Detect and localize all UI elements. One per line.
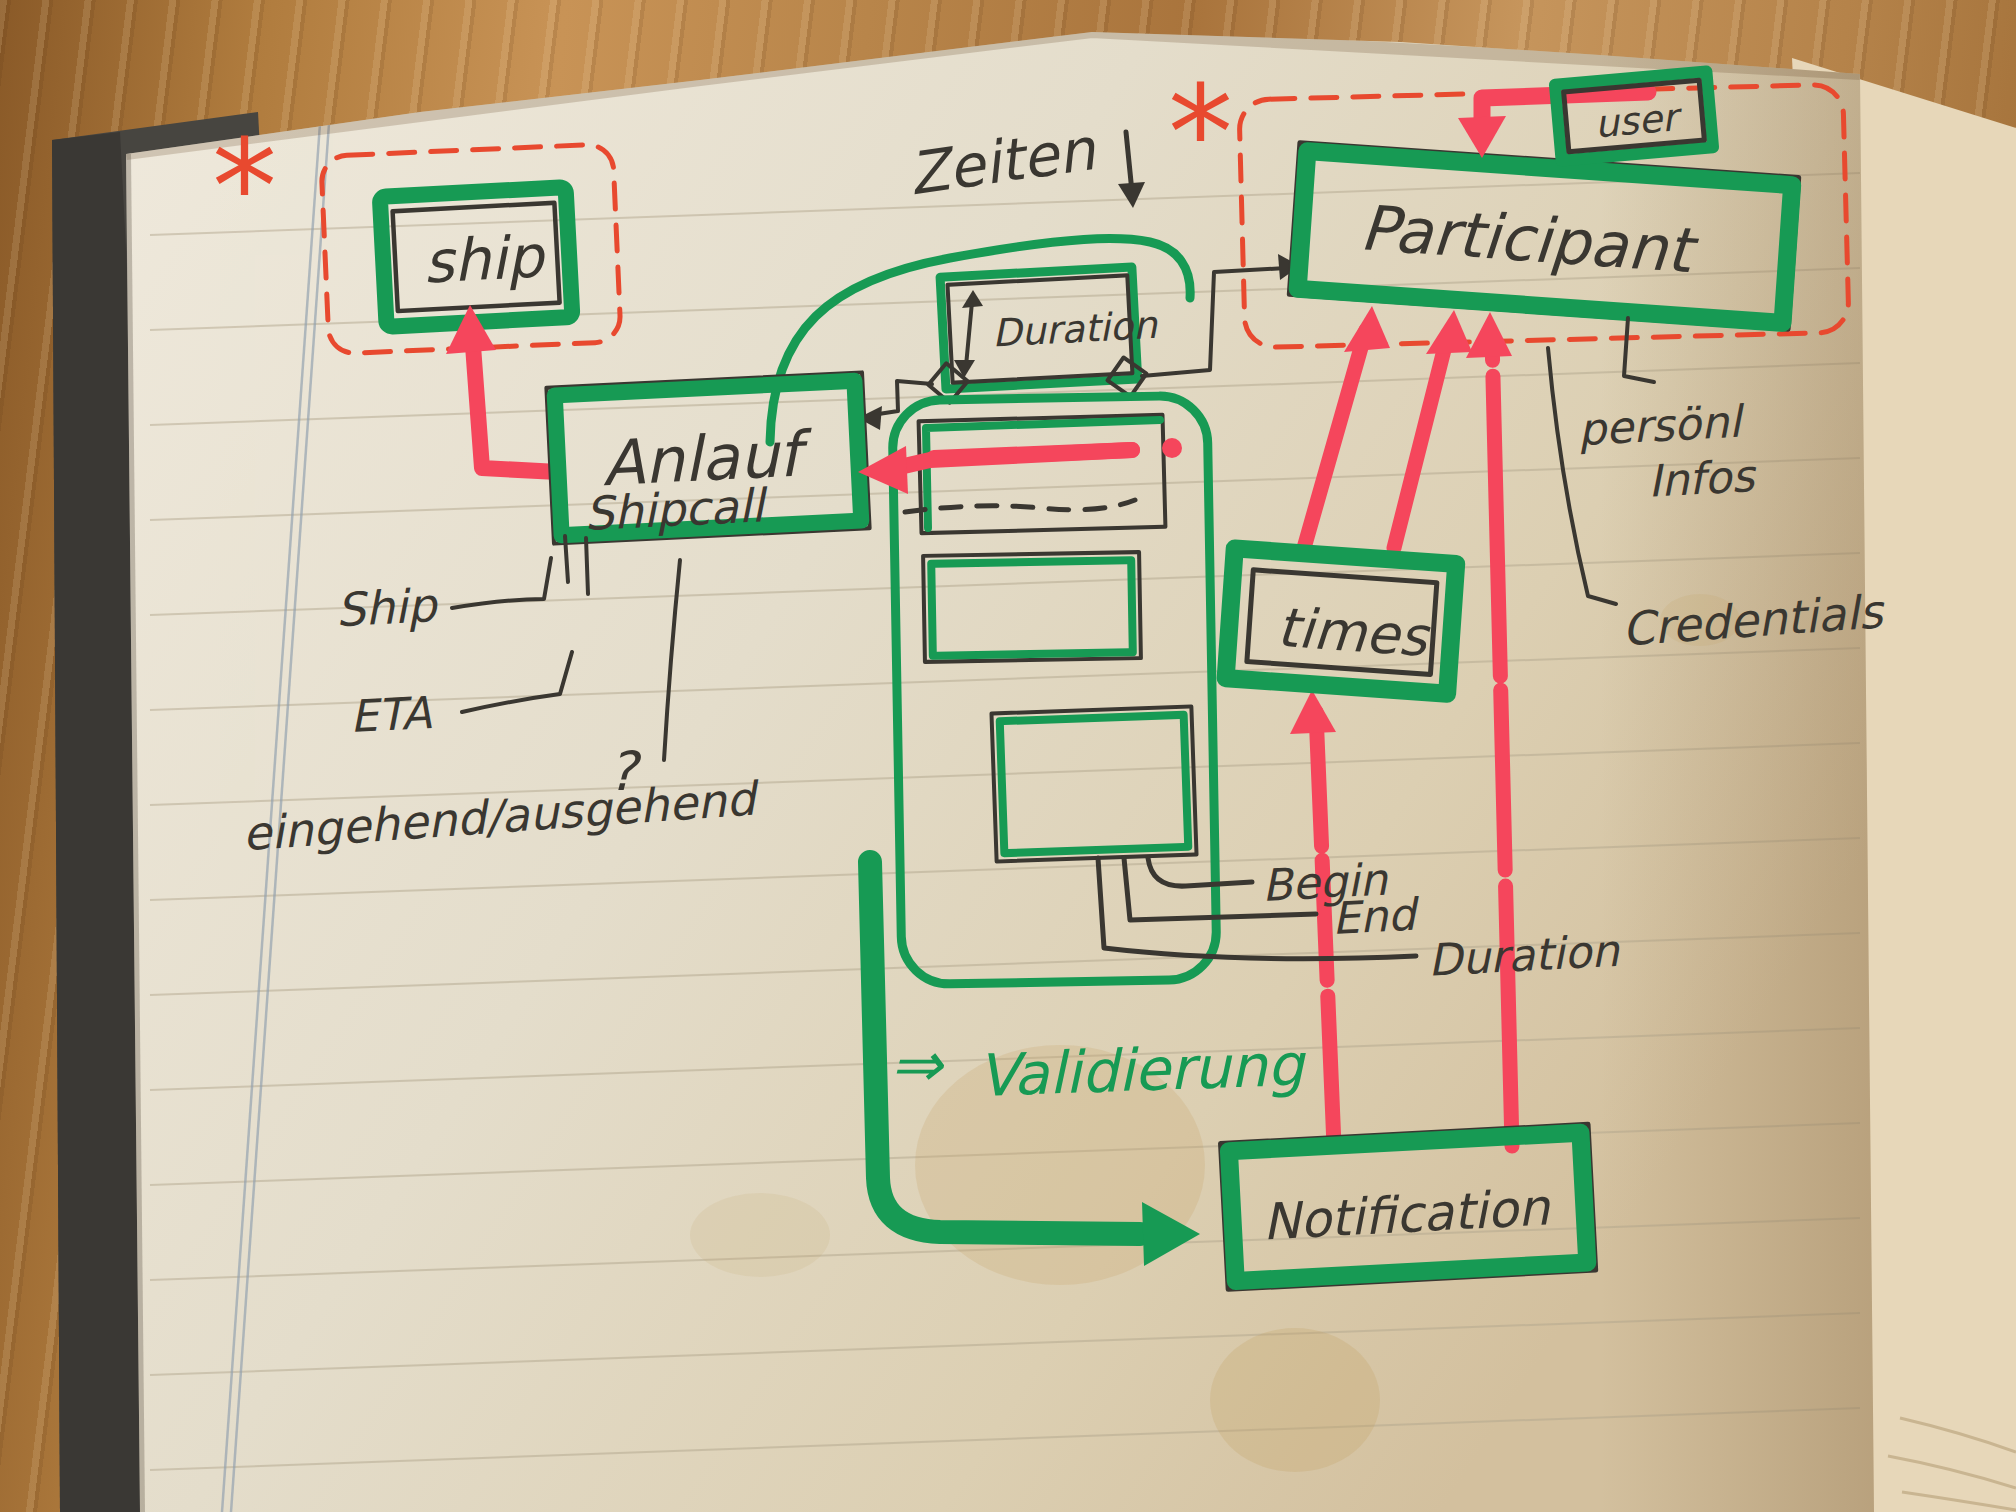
duration-box-label: Duration (991, 303, 1160, 356)
times-entity-label: times (1275, 596, 1433, 670)
paper-stain (1210, 1328, 1380, 1472)
asterisk-participant: * (1168, 57, 1233, 209)
attribute-label-duration: Duration (1427, 925, 1623, 986)
attribute-label-eta: ETA (349, 687, 433, 742)
implies-arrow-icon: ⇒ (890, 1028, 945, 1101)
attribute-label-personal-info-1: persönl (1577, 396, 1747, 456)
paper-stain (690, 1193, 830, 1277)
asterisk-ship: * (212, 111, 277, 263)
validierung-label: Validierung (977, 1031, 1308, 1110)
red-dot (1162, 438, 1182, 458)
attribute-label-personal-info-2: Infos (1647, 450, 1759, 507)
notebook-photo: * ship Zeiten Duration Anlauf Shipcall (0, 0, 2016, 1512)
ship-entity-label: ship (422, 222, 548, 296)
anlauf-entity-sublabel: Shipcall (583, 478, 770, 541)
attribute-label-ship: Ship (335, 578, 441, 637)
user-entity-label: user (1593, 95, 1685, 147)
sketch-diagram: * ship Zeiten Duration Anlauf Shipcall (0, 0, 2016, 1512)
attribute-label-end: End (1331, 888, 1422, 944)
